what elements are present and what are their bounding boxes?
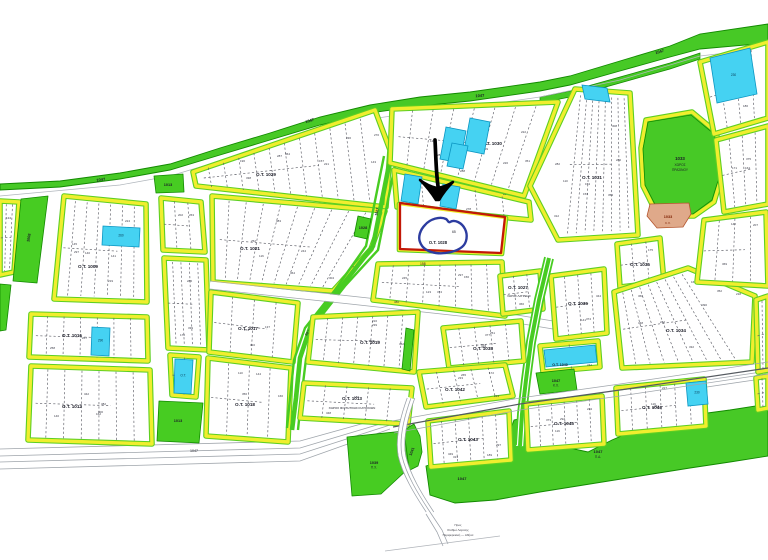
svg-text:158: 158 <box>420 262 426 266</box>
svg-text:Ο.Τ. 1040: Ο.Τ. 1040 <box>552 363 568 367</box>
svg-text:Ο.Τ. 1009: Ο.Τ. 1009 <box>78 264 98 269</box>
svg-text:374: 374 <box>437 290 442 294</box>
svg-text:364: 364 <box>285 152 290 156</box>
svg-text:1013: 1013 <box>174 419 182 423</box>
svg-text:Ο.Τ. 1036: Ο.Τ. 1036 <box>568 301 588 306</box>
svg-text:1033: 1033 <box>675 156 685 161</box>
svg-text:65: 65 <box>452 230 456 234</box>
svg-text:1039: 1039 <box>370 461 378 465</box>
svg-text:Κ.Χ.: Κ.Χ. <box>553 384 559 388</box>
svg-text:Ο.Τ. 1018: Ο.Τ. 1018 <box>235 402 255 407</box>
svg-text:369: 369 <box>722 262 727 266</box>
svg-text:285: 285 <box>187 279 192 283</box>
svg-text:230: 230 <box>694 391 700 395</box>
svg-text:Προς: Προς <box>455 523 463 527</box>
svg-text:116: 116 <box>259 254 264 258</box>
svg-text:226: 226 <box>503 161 508 165</box>
svg-text:1013: 1013 <box>164 183 172 187</box>
svg-text:Ο.Τ. 1035: Ο.Τ. 1035 <box>630 262 650 267</box>
svg-text:366: 366 <box>638 294 643 298</box>
svg-text:374: 374 <box>586 317 591 321</box>
svg-text:351: 351 <box>525 159 530 163</box>
svg-text:186: 186 <box>743 104 748 108</box>
svg-text:348: 348 <box>638 321 643 325</box>
svg-text:Ο.Τ.: Ο.Τ. <box>180 374 186 378</box>
svg-text:1047: 1047 <box>190 449 198 453</box>
svg-text:344: 344 <box>596 294 601 298</box>
svg-text:312: 312 <box>554 214 559 218</box>
svg-text:142: 142 <box>731 222 736 226</box>
svg-text:Ο.Τ. 1016: Ο.Τ. 1016 <box>62 333 82 338</box>
svg-text:354: 354 <box>608 193 613 197</box>
svg-text:ΧΩΡΟΣ ΛΑΤΡΕΙΑΣ: ΧΩΡΟΣ ΛΑΤΡΕΙΑΣ <box>507 294 531 298</box>
svg-text:278: 278 <box>466 207 471 211</box>
svg-text:137: 137 <box>265 325 270 329</box>
svg-text:1028: 1028 <box>359 226 367 230</box>
svg-text:164: 164 <box>745 166 750 170</box>
svg-text:Ο.Τ. 1021: Ο.Τ. 1021 <box>240 246 260 251</box>
svg-text:Π.Δ.: Π.Δ. <box>595 455 601 459</box>
svg-text:310: 310 <box>250 343 255 347</box>
svg-text:288: 288 <box>460 169 465 173</box>
svg-text:170: 170 <box>180 333 185 337</box>
svg-text:219: 219 <box>108 279 113 283</box>
svg-text:Ο.Τ. 1043: Ο.Τ. 1043 <box>458 437 478 442</box>
svg-text:222: 222 <box>521 130 526 134</box>
svg-text:260: 260 <box>118 234 124 238</box>
svg-text:Ο.Τ. 1012: Ο.Τ. 1012 <box>62 404 82 409</box>
svg-text:245: 245 <box>402 276 407 280</box>
svg-text:140: 140 <box>54 414 59 418</box>
svg-text:251: 251 <box>490 331 495 335</box>
svg-text:Περιφερειακή — Αθήνα: Περιφερειακή — Αθήνα <box>443 533 474 537</box>
svg-text:242: 242 <box>660 320 665 324</box>
svg-text:297: 297 <box>458 273 463 277</box>
svg-text:342: 342 <box>84 392 89 396</box>
svg-text:377: 377 <box>485 333 490 337</box>
svg-text:144: 144 <box>256 372 261 376</box>
svg-text:380: 380 <box>394 300 399 304</box>
svg-text:280: 280 <box>616 158 621 162</box>
svg-text:ΧΩΡΟΣ ΦΟΙΤΗΤΙΚΩΝ ΚΑΤΟΙΚΙΩΝ: ΧΩΡΟΣ ΦΟΙΤΗΤΙΚΩΝ ΚΑΤΟΙΚΙΩΝ <box>329 406 376 410</box>
svg-text:356: 356 <box>242 392 247 396</box>
svg-text:Ο.Τ. 1045: Ο.Τ. 1045 <box>554 421 574 426</box>
svg-text:1047: 1047 <box>552 379 560 383</box>
svg-text:153: 153 <box>585 182 590 186</box>
svg-text:308: 308 <box>612 124 617 128</box>
svg-text:196: 196 <box>240 159 245 163</box>
svg-text:Ο.Τ. 1034: Ο.Τ. 1034 <box>666 328 686 333</box>
svg-text:297: 297 <box>74 250 79 254</box>
svg-text:Ο.Τ. 1017: Ο.Τ. 1017 <box>238 326 258 331</box>
svg-text:Ο.Τ. 1042: Ο.Τ. 1042 <box>445 387 465 392</box>
svg-text:119: 119 <box>555 429 560 433</box>
svg-text:282: 282 <box>555 162 560 166</box>
svg-text:123: 123 <box>426 290 431 294</box>
svg-text:Ο.Τ. 1038: Ο.Τ. 1038 <box>473 346 493 351</box>
svg-text:338: 338 <box>246 176 251 180</box>
svg-text:258: 258 <box>50 346 55 350</box>
svg-text:300: 300 <box>98 410 103 414</box>
svg-text:Π.Χ.: Π.Χ. <box>371 466 377 470</box>
svg-text:Κ.Χ.: Κ.Χ. <box>665 221 671 225</box>
svg-text:202: 202 <box>178 213 183 217</box>
svg-text:166: 166 <box>278 394 283 398</box>
svg-text:Ο.Τ. 1028: Ο.Τ. 1028 <box>429 240 448 245</box>
svg-text:383: 383 <box>276 219 281 223</box>
svg-text:Σταθμό Λαρίσης: Σταθμό Λαρίσης <box>447 528 469 532</box>
svg-text:290: 290 <box>98 339 104 343</box>
svg-text:265: 265 <box>461 373 466 377</box>
svg-text:140: 140 <box>85 251 90 255</box>
svg-text:145: 145 <box>72 242 77 246</box>
svg-text:1033: 1033 <box>664 215 672 219</box>
svg-text:304: 304 <box>329 276 334 280</box>
svg-text:313: 313 <box>453 455 458 459</box>
svg-text:1047: 1047 <box>458 476 468 481</box>
svg-text:224: 224 <box>125 219 130 223</box>
svg-text:287: 287 <box>277 154 282 158</box>
svg-text:134: 134 <box>6 216 11 220</box>
svg-text:207: 207 <box>753 223 758 227</box>
svg-text:236: 236 <box>346 136 351 140</box>
svg-text:348: 348 <box>326 411 331 415</box>
svg-text:230: 230 <box>731 73 737 77</box>
svg-text:Ο.Τ. 1013: Ο.Τ. 1013 <box>342 396 362 401</box>
svg-text:339: 339 <box>188 326 193 330</box>
svg-text:270: 270 <box>374 133 379 137</box>
svg-text:153: 153 <box>583 192 588 196</box>
svg-text:373: 373 <box>546 418 551 422</box>
svg-text:213: 213 <box>494 394 499 398</box>
svg-text:242: 242 <box>587 363 592 367</box>
svg-text:366: 366 <box>519 302 524 306</box>
svg-text:141: 141 <box>111 254 116 258</box>
svg-text:171: 171 <box>732 166 737 170</box>
svg-text:224: 224 <box>587 407 592 411</box>
svg-text:ΧΩΡΟΣ: ΧΩΡΟΣ <box>674 163 685 167</box>
svg-text:352: 352 <box>717 289 722 293</box>
svg-text:110: 110 <box>563 179 568 183</box>
svg-text:267: 267 <box>82 336 87 340</box>
svg-text:Ο.Τ. 1027: Ο.Τ. 1027 <box>508 285 528 290</box>
svg-text:1047: 1047 <box>475 93 485 99</box>
svg-text:364: 364 <box>290 271 295 275</box>
svg-text:Ο.Τ. 1031: Ο.Τ. 1031 <box>582 175 602 180</box>
svg-text:Ο.Τ. 1029: Ο.Τ. 1029 <box>256 172 276 177</box>
svg-text:ΠΡΑΣΙΝΟΥ: ΠΡΑΣΙΝΟΥ <box>672 168 689 172</box>
svg-text:1047: 1047 <box>594 449 604 454</box>
svg-text:218: 218 <box>736 292 741 296</box>
svg-text:382: 382 <box>101 402 106 406</box>
svg-text:143: 143 <box>371 160 376 164</box>
svg-text:175: 175 <box>648 248 653 252</box>
svg-text:Ο.Τ. 1046: Ο.Τ. 1046 <box>642 405 662 410</box>
svg-text:352: 352 <box>399 342 404 346</box>
svg-text:252: 252 <box>251 239 256 243</box>
svg-text:375: 375 <box>746 157 751 161</box>
svg-text:244: 244 <box>301 249 306 253</box>
svg-text:332: 332 <box>689 345 694 349</box>
svg-text:239: 239 <box>372 323 377 327</box>
svg-text:221: 221 <box>324 162 329 166</box>
svg-text:172: 172 <box>489 371 494 375</box>
svg-text:110: 110 <box>238 371 243 375</box>
svg-text:189: 189 <box>487 453 492 457</box>
svg-text:Ο.Τ. 1019: Ο.Τ. 1019 <box>360 340 380 345</box>
svg-text:263: 263 <box>189 213 194 217</box>
svg-text:297: 297 <box>496 443 501 447</box>
svg-text:156: 156 <box>464 275 469 279</box>
svg-text:390: 390 <box>702 303 707 307</box>
